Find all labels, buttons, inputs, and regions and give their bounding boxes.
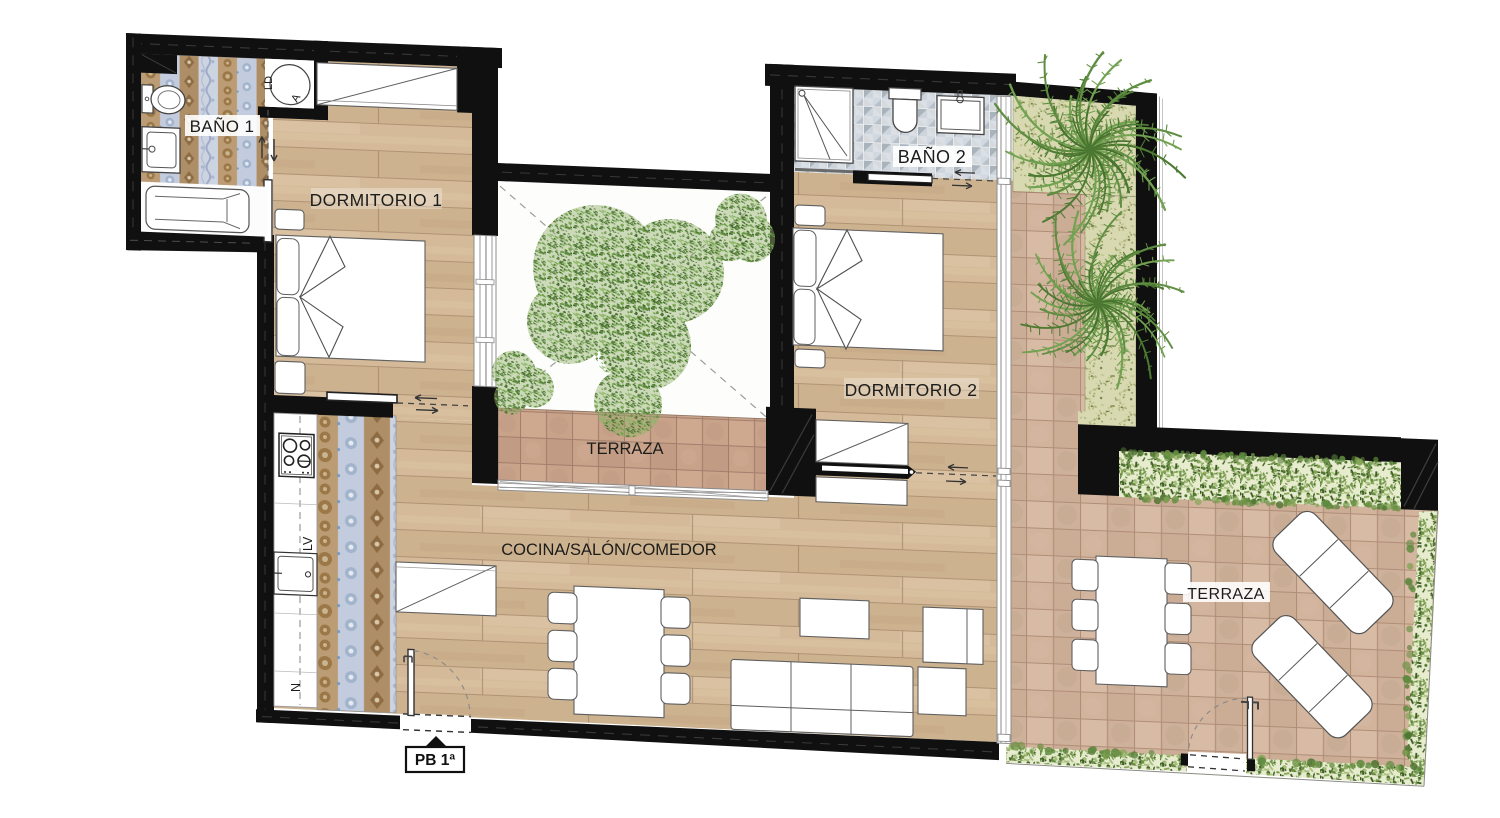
svg-text:BAÑO 2: BAÑO 2 bbox=[898, 146, 966, 167]
svg-text:BAÑO 1: BAÑO 1 bbox=[190, 117, 255, 136]
svg-text:N: N bbox=[289, 683, 303, 692]
svg-text:PB 1ª: PB 1ª bbox=[415, 752, 455, 769]
svg-text:TERRAZA: TERRAZA bbox=[1187, 586, 1264, 603]
svg-text:COCINA/SALÓN/COMEDOR: COCINA/SALÓN/COMEDOR bbox=[501, 540, 717, 559]
svg-text:LD: LD bbox=[263, 76, 275, 90]
svg-text:DORMITORIO 2: DORMITORIO 2 bbox=[845, 380, 978, 400]
svg-text:TERRAZA: TERRAZA bbox=[586, 440, 663, 458]
svg-text:LV: LV bbox=[301, 536, 315, 551]
svg-text:DORMITORIO 1: DORMITORIO 1 bbox=[310, 190, 443, 210]
